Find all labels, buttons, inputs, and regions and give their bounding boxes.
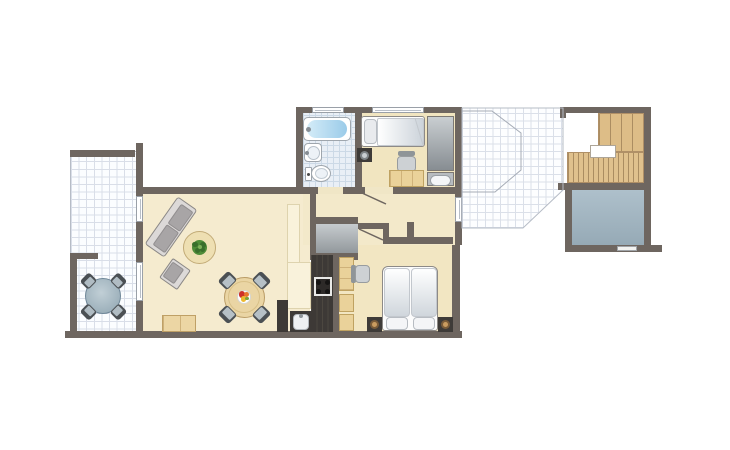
doorway-threshold-bedroom-1 bbox=[365, 187, 393, 194]
bedroom-1-window-glazing bbox=[375, 110, 421, 111]
living-room-window bbox=[136, 196, 143, 222]
kitchen-floor-zone-lower bbox=[287, 262, 311, 309]
bed-double-mattress-left bbox=[384, 268, 410, 317]
bedroom-2-chair bbox=[351, 263, 371, 285]
plant-leaf bbox=[192, 242, 198, 248]
bed-double-pillow-left bbox=[386, 317, 408, 330]
apartment-wall-right-upper bbox=[455, 107, 462, 245]
kitchen-faucet bbox=[299, 314, 303, 318]
patio-wall-bottom bbox=[565, 245, 662, 252]
apartment-wall-right-lower bbox=[452, 245, 460, 338]
bathtub-water bbox=[307, 120, 347, 138]
hall-wall-top-c bbox=[393, 187, 462, 194]
sideboard bbox=[162, 315, 196, 332]
bedroom-1-wardrobe bbox=[427, 116, 454, 171]
bedroom-1-lamp-shade bbox=[362, 153, 367, 158]
bedroom-2-cabinet-b bbox=[339, 314, 354, 331]
apartment-wall-bottom bbox=[136, 331, 462, 338]
bathroom-wall-left bbox=[296, 107, 303, 193]
fruit-green bbox=[245, 297, 248, 300]
apartment-wall-top-a bbox=[296, 107, 312, 113]
kitchen-tall-cabinet bbox=[277, 300, 288, 332]
hall-closet bbox=[316, 224, 358, 253]
living-wall-top bbox=[136, 187, 318, 194]
bedroom-2-lamp-right-shade bbox=[443, 322, 448, 327]
apartment-floor-plan bbox=[0, 0, 730, 450]
bathtub-faucet bbox=[306, 127, 311, 132]
bedroom-2-cabinet-a bbox=[339, 294, 354, 312]
front-door-glazing bbox=[459, 200, 460, 219]
staircase-wall-right bbox=[644, 107, 651, 252]
washbasin-faucet bbox=[305, 151, 309, 155]
patio-gate bbox=[617, 246, 637, 251]
hall-wall-top-b bbox=[343, 187, 365, 194]
bedroom-1-window bbox=[372, 107, 424, 113]
bed-double-pillow-right bbox=[413, 317, 435, 330]
bathroom-window-glazing bbox=[315, 110, 341, 111]
kitchen-floor-zone-upper bbox=[287, 204, 300, 264]
entry-walkway-floor bbox=[462, 108, 563, 228]
terrace-wall-bottom bbox=[65, 331, 143, 338]
plant-highlight bbox=[198, 245, 202, 249]
bedroom-2-lamp-left-shade bbox=[372, 322, 377, 327]
terrace-wall-stub bbox=[70, 253, 98, 259]
doorway-threshold-bathroom bbox=[318, 187, 343, 194]
living-wall-left bbox=[136, 143, 143, 338]
bed-single-duvet bbox=[377, 118, 424, 146]
closet-wall-top bbox=[310, 217, 358, 224]
terrace-door-glazing bbox=[140, 265, 141, 298]
bedroom-1-desk bbox=[389, 170, 424, 187]
bed-double-mattress-right bbox=[411, 268, 437, 317]
terrace-wall-left bbox=[70, 253, 77, 338]
chair-seat bbox=[355, 265, 370, 283]
hallway-pillar bbox=[407, 222, 414, 237]
living-room-window-glazing bbox=[140, 199, 141, 219]
lower-patio-floor bbox=[572, 190, 644, 245]
bathroom-window bbox=[312, 107, 344, 113]
staircase-wall-stub bbox=[560, 107, 566, 118]
staircase-wall-bottom bbox=[558, 183, 644, 190]
terrace-wall-top bbox=[70, 150, 135, 157]
bed-single-pillow bbox=[364, 119, 377, 144]
toilet-flush-dot bbox=[307, 173, 310, 176]
front-door bbox=[455, 197, 462, 222]
staircase-wall-top bbox=[560, 107, 651, 113]
patio-wall-left bbox=[565, 190, 572, 252]
terrace-door bbox=[136, 262, 143, 301]
staircase-break-marker bbox=[590, 145, 616, 158]
bedroom-2-wall-b bbox=[389, 237, 453, 244]
bedroom-1-vanity-basin bbox=[430, 175, 451, 186]
toilet-bowl-inner bbox=[315, 168, 328, 179]
